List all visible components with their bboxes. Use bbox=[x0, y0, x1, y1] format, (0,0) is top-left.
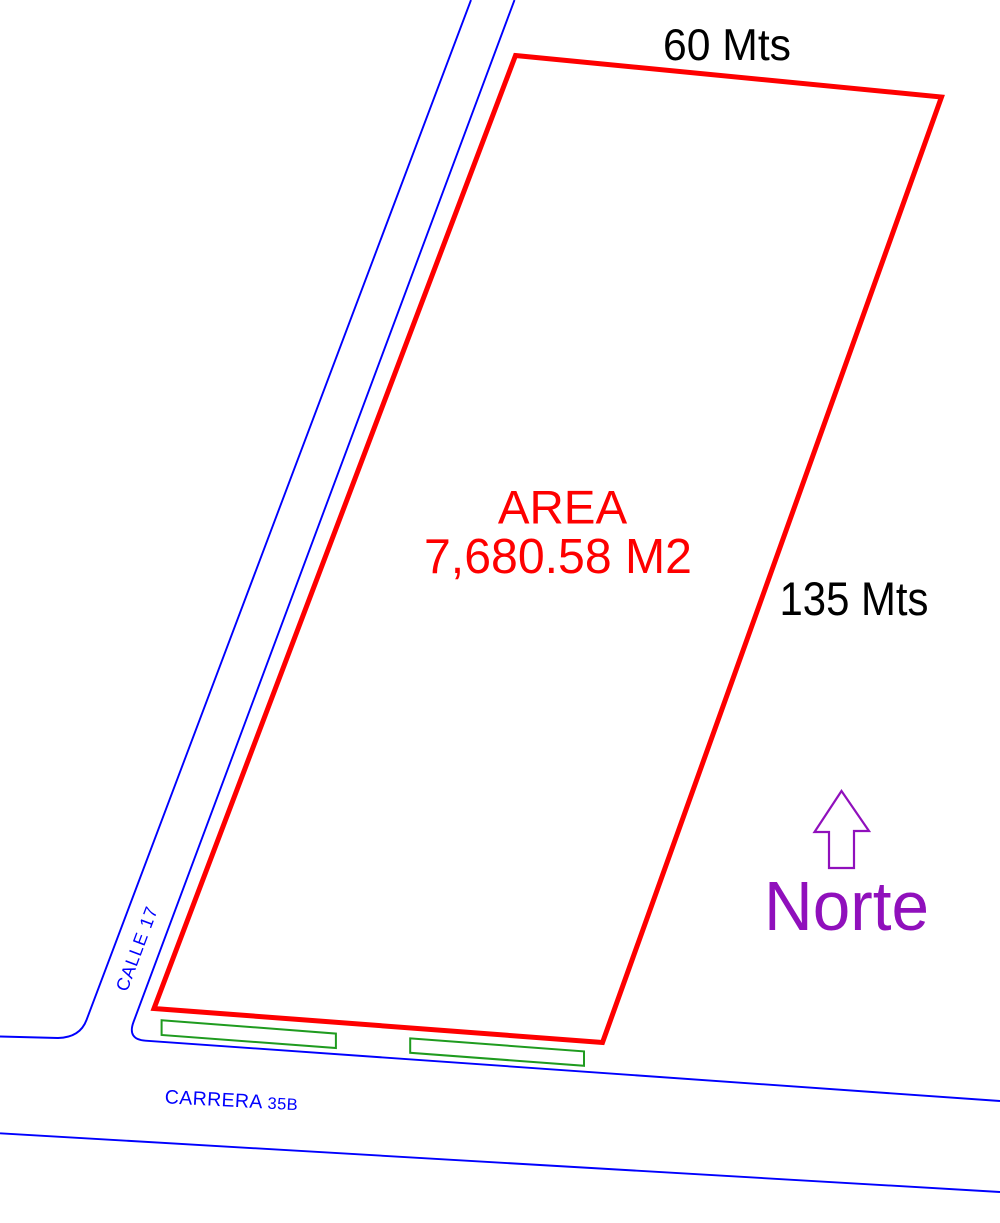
svg-text:AREA: AREA bbox=[498, 482, 628, 535]
svg-text:135 Mts: 135 Mts bbox=[780, 573, 929, 626]
svg-text:Norte: Norte bbox=[764, 867, 929, 945]
svg-text:7,680.58 M2: 7,680.58 M2 bbox=[424, 529, 692, 584]
svg-text:60 Mts: 60 Mts bbox=[663, 21, 791, 70]
